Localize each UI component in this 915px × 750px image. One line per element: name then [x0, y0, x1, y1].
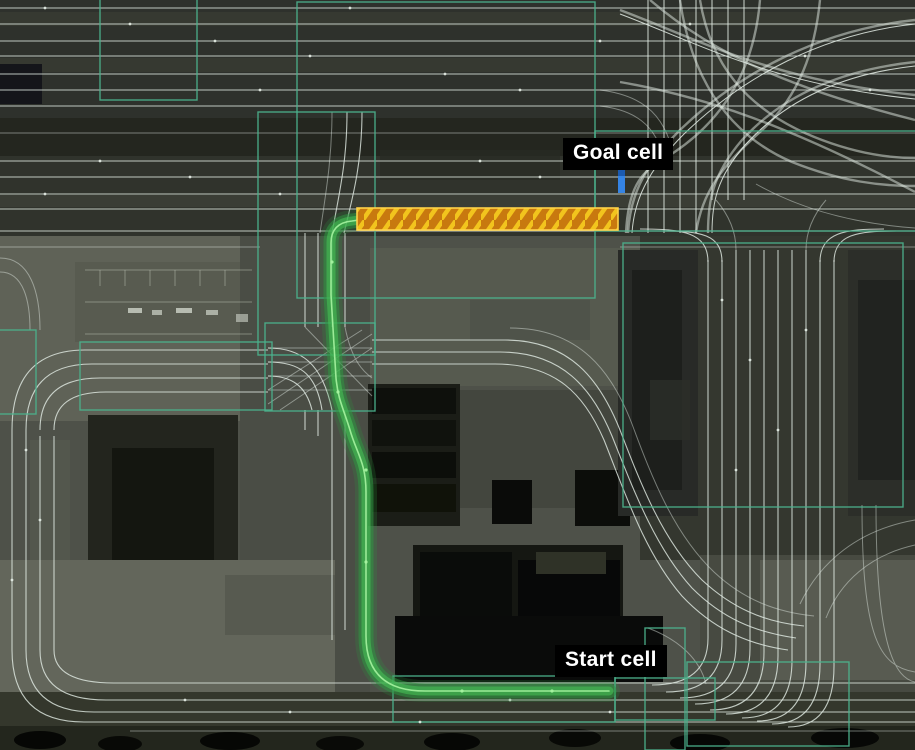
- goal-cell-hatched-highlight: [357, 208, 618, 230]
- lane-map-canvas: [0, 0, 915, 750]
- start-cell-label: Start cell: [555, 645, 667, 677]
- lane-map-viewport[interactable]: Goal cell Start cell: [0, 0, 915, 750]
- goal-cell-label: Goal cell: [563, 138, 673, 170]
- goal-position-marker: [618, 167, 625, 193]
